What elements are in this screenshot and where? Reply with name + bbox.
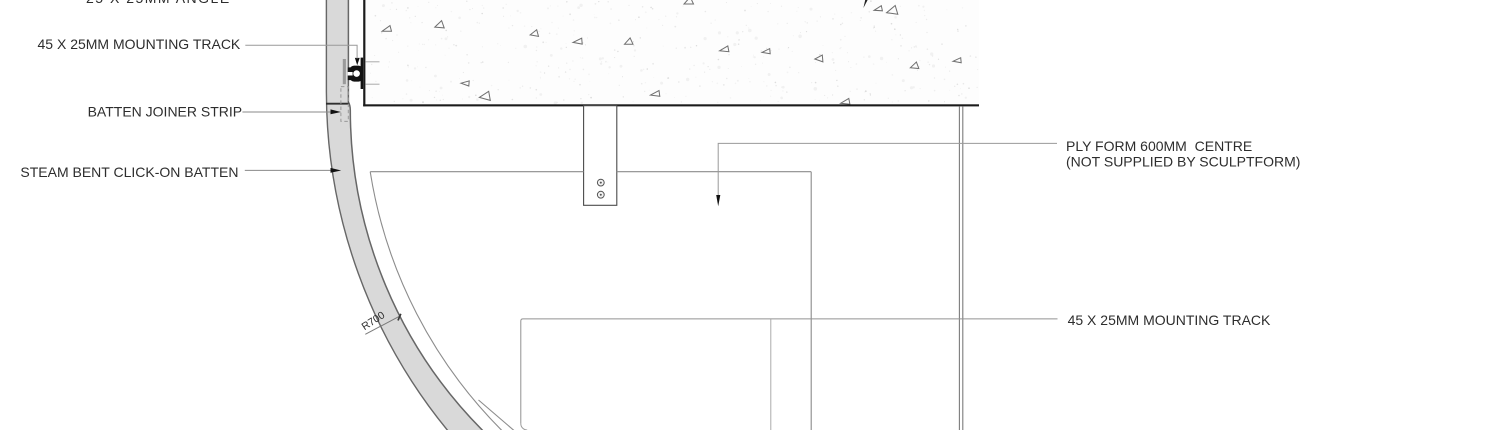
svg-text:PLY FORM 600MM CENTRE: PLY FORM 600MM CENTRE xyxy=(1066,138,1252,154)
svg-text:BATTEN JOINER STRIP: BATTEN JOINER STRIP xyxy=(88,103,243,119)
svg-text:(NOT SUPPLIED BY SCULPTFORM): (NOT SUPPLIED BY SCULPTFORM) xyxy=(1066,153,1300,169)
svg-text:25 X 25MM ANGLE: 25 X 25MM ANGLE xyxy=(86,0,231,6)
svg-text:45 X 25MM MOUNTING TRACK: 45 X 25MM MOUNTING TRACK xyxy=(38,36,241,52)
svg-text:STEAM BENT CLICK-ON BATTEN: STEAM BENT CLICK-ON BATTEN xyxy=(20,164,238,180)
svg-text:45 X 25MM MOUNTING TRACK: 45 X 25MM MOUNTING TRACK xyxy=(1068,312,1271,328)
